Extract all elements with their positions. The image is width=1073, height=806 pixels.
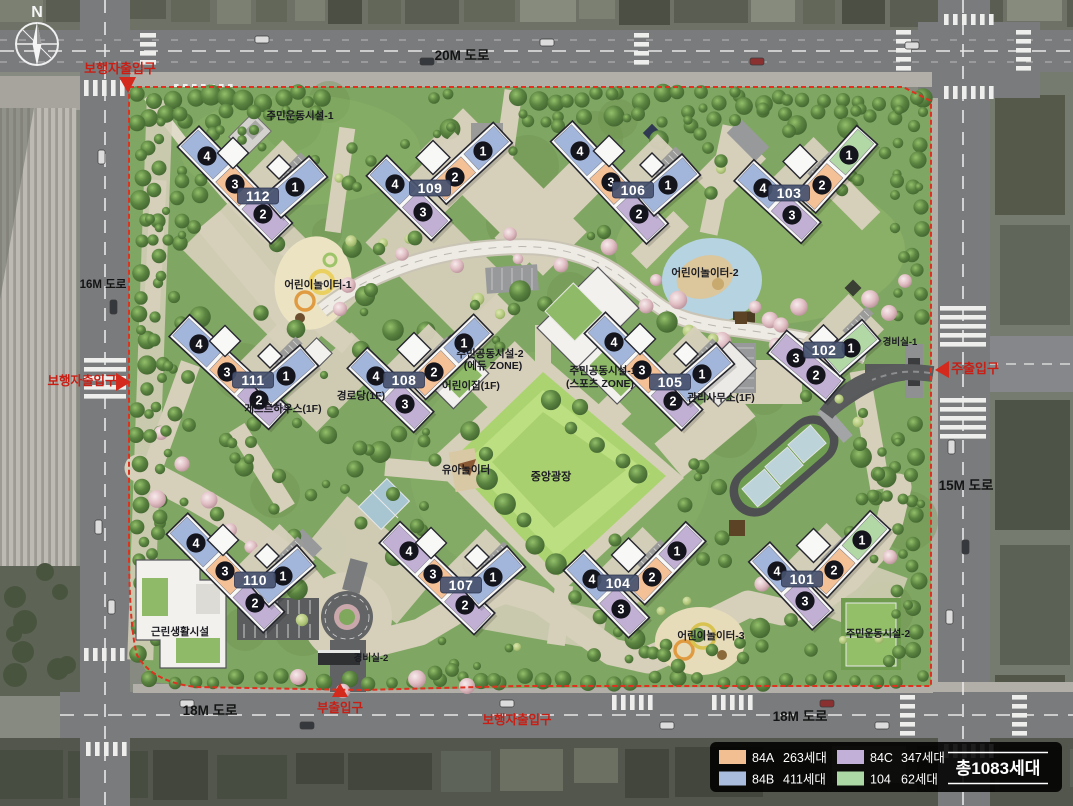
- svg-text:근린생활시설: 근린생활시설: [151, 625, 209, 638]
- svg-text:1: 1: [674, 544, 681, 558]
- svg-text:2: 2: [431, 365, 438, 379]
- svg-text:2: 2: [831, 563, 838, 577]
- svg-text:게스트하우스(1F): 게스트하우스(1F): [244, 402, 321, 415]
- svg-text:주민운동시설-2: 주민운동시설-2: [846, 627, 911, 640]
- svg-text:관리사무소(1F): 관리사무소(1F): [687, 391, 755, 404]
- svg-text:18M 도로: 18M 도로: [773, 709, 828, 724]
- svg-text:3: 3: [430, 567, 437, 581]
- svg-text:어린이놀이터-2: 어린이놀이터-2: [671, 266, 738, 279]
- svg-text:105: 105: [658, 374, 683, 390]
- svg-text:유아놀이터: 유아놀이터: [442, 463, 490, 476]
- svg-text:101: 101: [790, 571, 815, 587]
- svg-text:111: 111: [241, 372, 264, 388]
- svg-text:1: 1: [848, 341, 855, 355]
- svg-text:104: 104: [606, 575, 631, 591]
- svg-text:부출입구: 부출입구: [317, 700, 364, 715]
- svg-text:3: 3: [639, 363, 646, 377]
- svg-text:어린이놀이터-1: 어린이놀이터-1: [284, 278, 351, 291]
- svg-text:어린이집(1F): 어린이집(1F): [442, 379, 500, 392]
- svg-text:경비실-1: 경비실-1: [883, 336, 918, 348]
- svg-text:2: 2: [252, 596, 259, 610]
- svg-text:2: 2: [670, 394, 677, 408]
- svg-text:중앙광장: 중앙광장: [531, 469, 571, 483]
- svg-text:주출입구: 주출입구: [951, 361, 999, 376]
- svg-text:2: 2: [819, 178, 826, 192]
- svg-text:1: 1: [665, 178, 672, 192]
- svg-text:347세대: 347세대: [901, 751, 945, 765]
- svg-text:110: 110: [243, 572, 267, 588]
- svg-text:3: 3: [793, 351, 800, 365]
- svg-text:1: 1: [859, 533, 866, 547]
- svg-text:3: 3: [224, 365, 231, 379]
- svg-text:16M 도로: 16M 도로: [80, 278, 127, 291]
- svg-text:보행자출입구: 보행자출입구: [47, 373, 117, 388]
- svg-text:1: 1: [280, 569, 287, 583]
- svg-text:2: 2: [462, 598, 469, 612]
- svg-text:107: 107: [449, 577, 474, 593]
- svg-text:1: 1: [699, 367, 706, 381]
- svg-text:18M 도로: 18M 도로: [183, 703, 238, 718]
- svg-text:4: 4: [196, 337, 203, 351]
- svg-text:20M 도로: 20M 도로: [435, 48, 490, 63]
- svg-text:4: 4: [193, 536, 200, 550]
- svg-text:1: 1: [283, 369, 290, 383]
- svg-text:주민공동시설-1: 주민공동시설-1: [569, 364, 636, 377]
- svg-text:112: 112: [246, 188, 270, 204]
- svg-text:총1083세대: 총1083세대: [956, 759, 1041, 778]
- svg-text:3: 3: [789, 208, 796, 222]
- svg-text:(스포츠 ZONE): (스포츠 ZONE): [566, 377, 634, 390]
- svg-text:84A: 84A: [752, 751, 775, 765]
- svg-text:어린이놀이터-3: 어린이놀이터-3: [677, 629, 744, 642]
- svg-text:1: 1: [480, 144, 487, 158]
- svg-text:보행자출입구: 보행자출입구: [482, 712, 552, 727]
- svg-text:3: 3: [420, 205, 427, 219]
- svg-text:3: 3: [802, 594, 809, 608]
- svg-text:102: 102: [812, 342, 837, 358]
- svg-text:103: 103: [777, 185, 802, 201]
- svg-text:4: 4: [204, 149, 211, 163]
- svg-text:84B: 84B: [752, 773, 774, 787]
- svg-text:1: 1: [292, 180, 299, 194]
- svg-text:경비실-2: 경비실-2: [354, 652, 389, 664]
- svg-text:보행자출입구: 보행자출입구: [84, 61, 156, 76]
- svg-text:4: 4: [589, 572, 596, 586]
- svg-text:263세대: 263세대: [783, 751, 827, 765]
- svg-text:106: 106: [621, 182, 646, 198]
- svg-text:104: 104: [870, 773, 891, 787]
- svg-text:411세대: 411세대: [783, 773, 826, 787]
- svg-text:경로당(1F): 경로당(1F): [337, 389, 385, 402]
- svg-text:4: 4: [577, 144, 584, 158]
- svg-text:N: N: [31, 4, 43, 21]
- svg-text:4: 4: [774, 564, 781, 578]
- svg-text:(에듀 ZONE): (에듀 ZONE): [464, 359, 522, 372]
- svg-text:2: 2: [813, 368, 820, 382]
- svg-text:84C: 84C: [870, 751, 893, 765]
- svg-text:2: 2: [649, 570, 656, 584]
- svg-text:109: 109: [418, 180, 443, 196]
- svg-text:4: 4: [611, 335, 618, 349]
- svg-text:4: 4: [406, 544, 413, 558]
- svg-text:2: 2: [260, 207, 267, 221]
- svg-text:2: 2: [452, 170, 459, 184]
- svg-text:108: 108: [392, 372, 417, 388]
- svg-text:4: 4: [392, 177, 399, 191]
- svg-text:15M 도로: 15M 도로: [939, 478, 994, 493]
- svg-text:2: 2: [636, 207, 643, 221]
- svg-text:1: 1: [846, 148, 853, 162]
- svg-text:주민공동시설-2: 주민공동시설-2: [456, 347, 523, 360]
- svg-text:주민운동시설-1: 주민운동시설-1: [266, 109, 333, 122]
- svg-text:3: 3: [618, 602, 625, 616]
- svg-text:3: 3: [222, 564, 229, 578]
- svg-text:4: 4: [760, 181, 767, 195]
- svg-text:1: 1: [490, 570, 497, 584]
- svg-text:62세대: 62세대: [901, 773, 938, 787]
- svg-text:3: 3: [402, 397, 409, 411]
- svg-text:4: 4: [373, 369, 380, 383]
